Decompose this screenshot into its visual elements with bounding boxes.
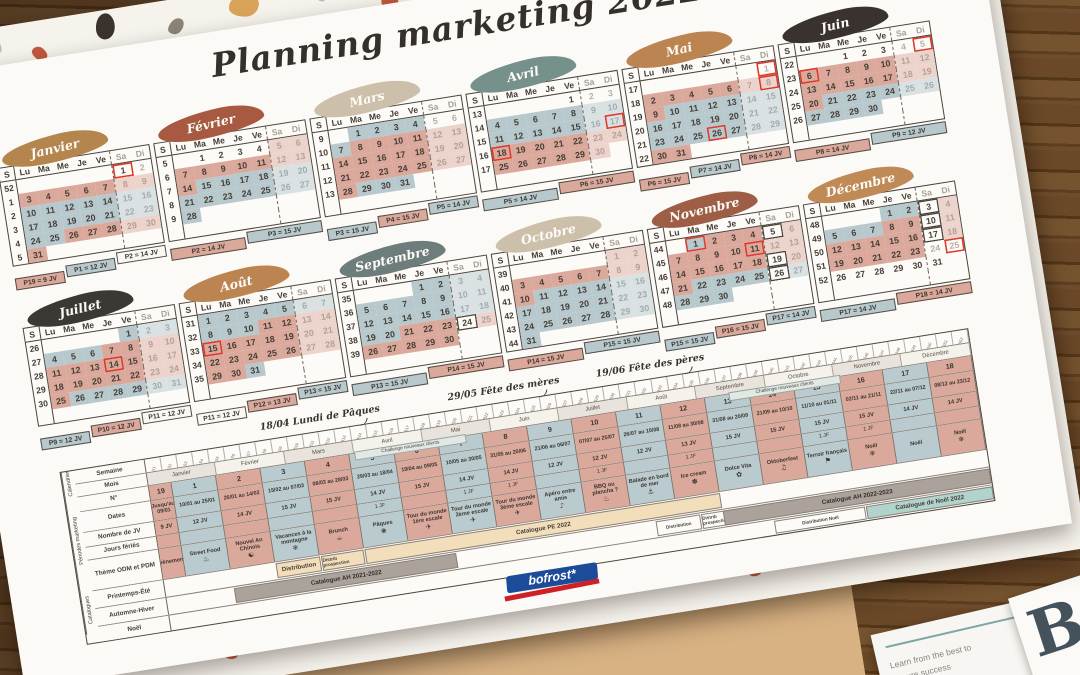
theme-icon: ♪: [559, 503, 565, 511]
week-cell: S43: [809, 352, 827, 367]
theme-icon: ☕: [336, 535, 343, 543]
week-cell: S18: [413, 414, 431, 429]
week-cell: S41: [777, 357, 795, 372]
day-cell: [209, 382, 230, 399]
week-cell: S4: [192, 450, 210, 465]
theme-icon: ♫: [780, 464, 787, 472]
week-cell: S39: [746, 362, 764, 377]
day-cell: [460, 342, 482, 359]
period-band: P5 = 14 JV: [482, 188, 559, 212]
day-header-cell: S: [24, 326, 42, 341]
letter-glyph: B: [1019, 585, 1080, 673]
month-card: AvrilSLuMaMeJeVeSaDi13123144567891015111…: [462, 46, 637, 216]
day-cell: [285, 370, 306, 387]
month-card: JuilletSLuMaMeJeVeSaDi261232745678910281…: [19, 280, 194, 450]
day-cell: [358, 194, 379, 211]
day-cell: [553, 163, 574, 180]
day-cell: [435, 182, 457, 199]
day-cell: [65, 240, 86, 257]
theme-icon: ✈: [470, 517, 477, 525]
day-cell: [304, 366, 326, 383]
week-cell: S1: [145, 457, 163, 472]
day-cell: 30: [651, 147, 672, 164]
day-cell: [339, 197, 360, 214]
period-band: P12 = 13 JV: [247, 393, 298, 413]
week-cell: S7: [239, 442, 257, 457]
week-cell: S20: [445, 409, 463, 424]
month-name: Juin: [819, 14, 850, 35]
week-cell: S42: [793, 354, 811, 369]
day-cell: [616, 317, 638, 334]
day-cell: [129, 394, 150, 411]
week-cell: S5: [208, 447, 226, 462]
theme-icon: ☯: [248, 552, 255, 560]
day-cell: [772, 292, 794, 309]
day-cell: [168, 388, 189, 405]
theme-icon: ✽: [691, 479, 698, 487]
day-cell: [578, 323, 599, 340]
day-cell: [455, 179, 476, 196]
day-cell: [909, 271, 930, 288]
week-cell: S2: [160, 455, 178, 470]
period-band: P6 = 15 JV: [639, 172, 690, 192]
day-cell: [221, 216, 242, 233]
day-cell: [365, 357, 386, 374]
day-cell: [228, 379, 249, 396]
week-cell: S46: [856, 344, 874, 359]
day-cell: [923, 104, 944, 121]
day-header-cell: S: [804, 203, 822, 218]
day-cell: [734, 298, 755, 315]
day-cell: [696, 304, 717, 321]
day-cell: [636, 314, 657, 331]
day-cell: [240, 213, 261, 230]
day-cell: [143, 228, 164, 245]
day-cell: 31: [27, 246, 48, 263]
week-cell: S50: [920, 334, 938, 349]
day-header-cell: S: [180, 302, 198, 317]
period-band: P11 = 12 JV: [196, 406, 247, 426]
terrazzo-blob: [228, 0, 258, 17]
theme-icon: ✈: [514, 510, 521, 518]
day-cell: [597, 320, 618, 337]
week-cell: S38: [730, 364, 748, 379]
week-cell: S49: [904, 337, 922, 352]
day-cell: [827, 120, 848, 137]
week-cell: S51: [936, 332, 954, 347]
day-cell: [91, 400, 112, 417]
day-cell: [122, 231, 144, 248]
day-cell: [690, 141, 711, 158]
period-band: P2 = 14 JV: [170, 237, 247, 261]
day-cell: [514, 169, 535, 186]
day-cell: [148, 391, 170, 408]
day-cell: [572, 160, 593, 177]
day-cell: [559, 326, 580, 343]
day-header-cell: S: [154, 142, 172, 157]
period-band: P17 = 14 JV: [820, 298, 897, 322]
period-band: P8 = 14 JV: [794, 138, 871, 162]
period-band: P4 = 15 JV: [377, 208, 428, 228]
day-cell: [46, 243, 67, 260]
day-cell: [792, 289, 813, 306]
day-cell: [928, 267, 950, 284]
day-cell: [728, 135, 749, 152]
day-cell: [709, 138, 730, 155]
day-cell: [183, 222, 204, 239]
day-cell: [266, 373, 287, 390]
day-header-cell: S: [779, 43, 797, 58]
month-name: Mars: [348, 88, 386, 111]
day-header-cell: S: [492, 252, 510, 267]
day-cell: [753, 295, 774, 312]
annotation-hook: [534, 388, 548, 398]
day-cell: [202, 219, 223, 236]
month-card: SeptembreSLuMaMeJeVeSaDi3512343656789101…: [331, 231, 506, 401]
period-band: P13 = 15 JV: [351, 372, 428, 396]
theme-icon: ⚓: [647, 488, 654, 496]
day-cell: [903, 107, 925, 124]
week-cell: S47: [872, 342, 890, 357]
day-cell: [53, 406, 74, 423]
period-band: P16 = 15 JV: [715, 319, 766, 339]
day-cell: [377, 191, 398, 208]
day-cell: [480, 339, 501, 356]
period-band: P15 = 15 JV: [664, 332, 715, 352]
week-cell: S52: [951, 329, 969, 344]
day-cell: [948, 264, 969, 281]
week-cell: S37: [714, 367, 732, 382]
period-cell-dates: Jusqu'au 09/01: [151, 497, 177, 520]
day-cell: [677, 307, 698, 324]
terrazzo-blob: [0, 34, 3, 63]
week-cell: S6: [224, 445, 242, 460]
day-cell: [324, 363, 345, 380]
month-card: DécembreSLuMaMeJeVeSaDi48123449567891011…: [799, 157, 974, 327]
month-card: JuinSLuMaMeJeVeSaDi221234523678910111224…: [774, 0, 949, 167]
theme-icon: ♨: [603, 496, 610, 504]
terrazzo-blob: [311, 0, 328, 3]
day-cell: [384, 354, 405, 371]
annotation-hook: [354, 417, 368, 427]
period-band: P1 = 12 JV: [65, 258, 116, 278]
theme-icon: ❄: [869, 450, 876, 458]
theme-icon: ❄: [958, 436, 965, 444]
month-name: Juillet: [57, 296, 102, 320]
month-card: FévrierSLuMaMeJeVeSaDi512345667891011121…: [149, 96, 324, 266]
annotation-hook: [679, 365, 693, 375]
day-cell: [495, 172, 516, 189]
day-cell: [299, 203, 320, 220]
day-cell: [846, 117, 867, 134]
day-cell: [767, 129, 788, 146]
week-cell: S19: [429, 412, 447, 427]
day-cell: [103, 234, 124, 251]
week-cell: S45: [841, 347, 859, 362]
day-cell: [865, 114, 886, 131]
week-cell: S8: [255, 440, 273, 455]
month-card: MaiSLuMaMeJeVeSaDi1711823456781991011121…: [618, 21, 793, 191]
month-name: Avril: [505, 63, 540, 85]
day-cell: [534, 166, 555, 183]
day-cell: [833, 283, 854, 300]
month-card: MarsSLuMaMeJeVeSaDi912345610789101112131…: [306, 71, 481, 241]
terrazzo-blob: [166, 15, 188, 37]
period-band: P10 = 12 JV: [91, 418, 142, 438]
day-cell: [279, 206, 301, 223]
week-cell: S48: [888, 339, 906, 354]
theme-icon: ❀: [381, 528, 388, 536]
week-cell: S29: [588, 387, 606, 402]
day-cell: [396, 188, 417, 205]
month-card: AoûtSLuMaMeJeVeSaDi311234567328910111213…: [175, 256, 350, 426]
day-header-cell: S: [648, 228, 666, 243]
terrazzo-blob: [95, 12, 116, 40]
period-band: P14 = 15 JV: [507, 348, 584, 372]
month-name: Août: [218, 273, 253, 295]
day-cell: [441, 345, 462, 362]
week-cell: S40: [762, 359, 780, 374]
day-cell: [715, 301, 736, 318]
period-band: P7 = 14 JV: [689, 159, 740, 179]
month-name: Février: [185, 111, 236, 137]
day-cell: [747, 132, 769, 149]
period-band: P3 = 15 JV: [327, 221, 378, 241]
week-cell: S44: [825, 349, 843, 364]
month-card: NovembreSLuMaMeJeVeSaDi44123456457891011…: [643, 181, 818, 351]
day-cell: [591, 157, 613, 174]
theme-icon: ✈: [425, 524, 432, 532]
theme-icon: ♨: [203, 556, 210, 564]
day-header-cell: S: [336, 277, 354, 292]
day-cell: [259, 210, 280, 227]
month-name: Mai: [664, 39, 693, 60]
week-cell: S17: [398, 417, 416, 432]
week-cell: S3: [176, 452, 194, 467]
day-cell: [110, 397, 131, 414]
day-header-cell: S: [623, 67, 641, 82]
day-cell: [884, 111, 905, 128]
day-cell: [422, 348, 443, 365]
theme-icon: ✿: [736, 472, 743, 480]
theme-icon: ⚑: [824, 457, 831, 465]
month-card: OctobreSLuMaMeJeVeSaDi391240345678941101…: [487, 206, 662, 376]
day-cell: [808, 123, 829, 140]
day-cell: [852, 280, 873, 297]
week-cell: S28: [572, 389, 590, 404]
desk-scene: Learn from the best to ensure success B …: [0, 0, 1080, 675]
period-band: P19 = 9 JV: [15, 271, 66, 291]
day-cell: [416, 185, 437, 202]
day-cell: [540, 329, 561, 346]
day-cell: [72, 403, 93, 420]
day-cell: 31: [521, 332, 542, 349]
day-header-cell: S: [310, 117, 328, 132]
day-cell: [611, 154, 632, 171]
theme-icon: ❄: [292, 545, 299, 553]
period-band: P9 = 12 JV: [40, 431, 91, 451]
day-cell: [403, 351, 424, 368]
month-card: JanvierSLuMaMeJeVeSaDi521213456789210111…: [0, 120, 169, 290]
day-cell: [890, 274, 911, 291]
day-cell: 31: [671, 144, 692, 161]
day-cell: [871, 277, 892, 294]
day-cell: [84, 237, 105, 254]
week-cell: S16: [382, 419, 400, 434]
day-cell: [247, 376, 268, 393]
day-header-cell: S: [466, 92, 484, 107]
